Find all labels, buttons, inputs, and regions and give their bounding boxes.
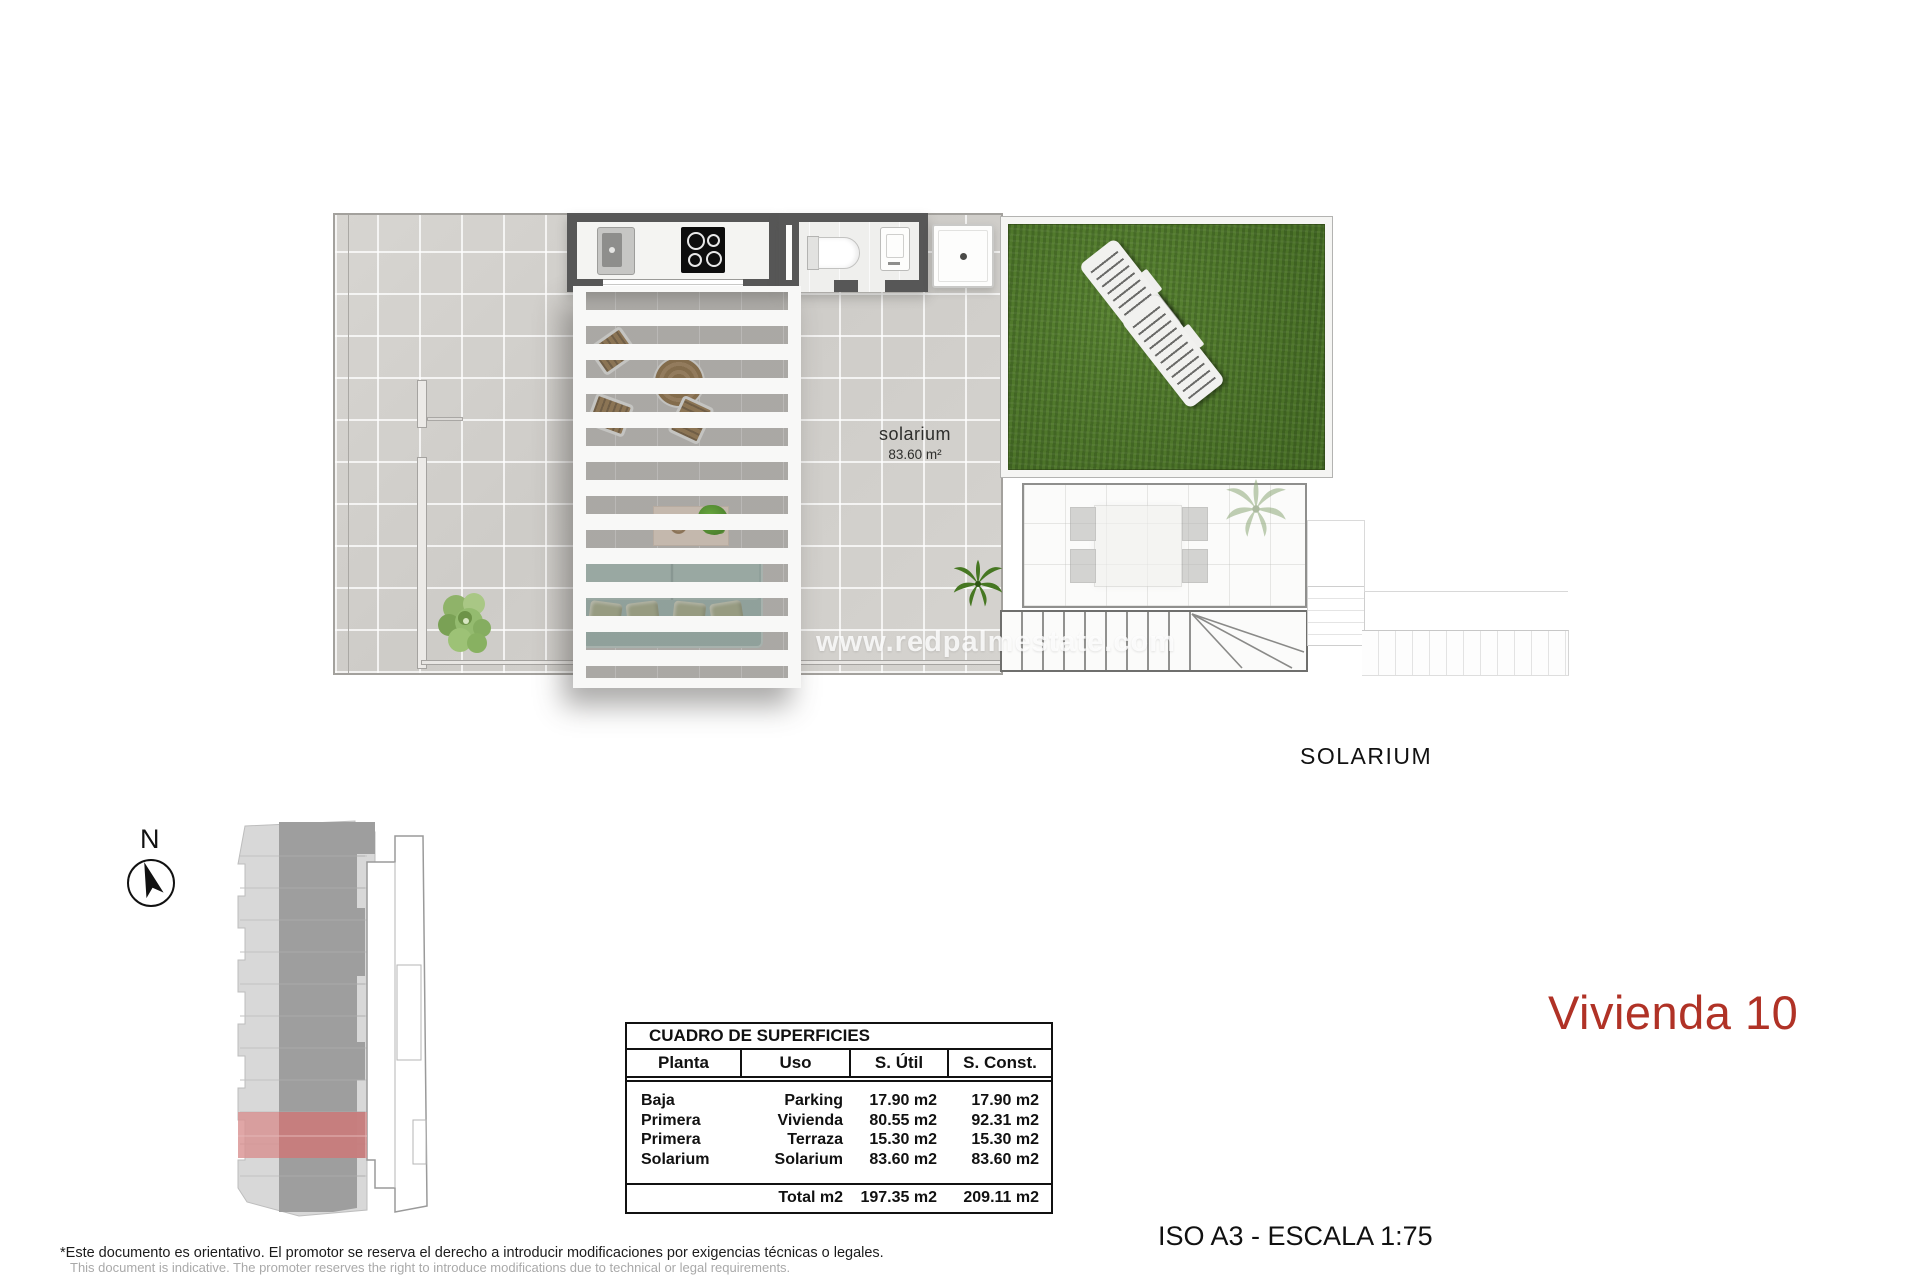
summer-kitchen bbox=[567, 213, 779, 292]
dining-chair bbox=[1182, 507, 1208, 541]
sink-icon bbox=[597, 227, 635, 275]
interior-wall bbox=[417, 457, 427, 669]
burner bbox=[706, 251, 722, 267]
interior-wall bbox=[417, 380, 427, 428]
table-body: Baja Parking 17.90 m2 17.90 m2 Primera V… bbox=[627, 1080, 1051, 1181]
wall bbox=[567, 213, 779, 222]
sun-lounger bbox=[1120, 293, 1225, 410]
burner bbox=[688, 253, 702, 267]
pergola-slats bbox=[573, 286, 801, 688]
table-cell: Baja bbox=[627, 1091, 740, 1111]
neighbor-staircase bbox=[1362, 630, 1569, 676]
table-row: Primera Vivienda 80.55 m2 92.31 m2 bbox=[627, 1111, 1051, 1131]
table-cell: Vivienda bbox=[740, 1111, 849, 1131]
bush-plant-icon bbox=[436, 588, 496, 658]
interior-wall-stub bbox=[427, 417, 463, 421]
pergola bbox=[573, 286, 801, 688]
table-cell: 15.30 m2 bbox=[849, 1130, 947, 1150]
artificial-grass bbox=[1008, 224, 1325, 470]
roof-outline bbox=[1364, 591, 1568, 592]
table-header: Planta Uso S. Útil S. Const. bbox=[627, 1050, 1051, 1078]
table-cell: Terraza bbox=[740, 1130, 849, 1150]
roof-outline bbox=[1364, 540, 1365, 592]
table-title: CUADRO DE SUPERFICIES bbox=[627, 1024, 1051, 1050]
dining-table bbox=[1094, 505, 1182, 587]
table-cell: Primera bbox=[627, 1111, 740, 1131]
washbasin-icon bbox=[880, 227, 910, 271]
floor-plan-sheet: solarium 83.60 m² bbox=[0, 0, 1920, 1280]
toilet-bowl bbox=[818, 237, 860, 269]
disclaimer: *Este documento es orientativo. El promo… bbox=[60, 1245, 884, 1276]
col-header: S. Útil bbox=[849, 1050, 947, 1076]
table-cell bbox=[627, 1188, 740, 1208]
dining-chair bbox=[1182, 549, 1208, 583]
wall bbox=[567, 213, 577, 292]
room-area: 83.60 m² bbox=[845, 447, 985, 462]
palm-tree-icon bbox=[1224, 477, 1288, 541]
burner bbox=[707, 234, 720, 247]
unit-title: Vivienda 10 bbox=[1548, 985, 1798, 1040]
table-cell: 83.60 m2 bbox=[849, 1150, 947, 1170]
col-header: S. Const. bbox=[947, 1050, 1051, 1076]
table-cell: 17.90 m2 bbox=[947, 1091, 1051, 1111]
burner bbox=[687, 232, 705, 250]
table-cell: Solarium bbox=[627, 1150, 740, 1170]
table-cell: 197.35 m2 bbox=[849, 1188, 947, 1208]
table-cell: 80.55 m2 bbox=[849, 1111, 947, 1131]
watermark: www.redpalmestate.com bbox=[816, 626, 1176, 659]
lawn-area bbox=[1000, 216, 1333, 478]
table-cell: Solarium bbox=[740, 1150, 849, 1170]
table-cell: 15.30 m2 bbox=[947, 1130, 1051, 1150]
table-cell: 83.60 m2 bbox=[947, 1150, 1051, 1170]
palm-plant-icon bbox=[952, 558, 1004, 610]
site-key-plan bbox=[237, 820, 429, 1218]
table-cell: Total m2 bbox=[740, 1188, 849, 1208]
hob-icon bbox=[681, 227, 725, 273]
dining-chair bbox=[1070, 507, 1096, 541]
bathroom bbox=[779, 213, 928, 292]
table-row: Solarium Solarium 83.60 m2 83.60 m2 bbox=[627, 1150, 1051, 1170]
table-row: Baja Parking 17.90 m2 17.90 m2 bbox=[627, 1091, 1051, 1111]
wall-opening bbox=[786, 225, 792, 280]
wall bbox=[919, 213, 928, 292]
wall bbox=[779, 213, 928, 222]
stair-landing bbox=[1307, 586, 1365, 646]
col-header: Uso bbox=[740, 1050, 849, 1076]
disclaimer-es: *Este documento es orientativo. El promo… bbox=[60, 1245, 884, 1261]
scale-note: ISO A3 - ESCALA 1:75 bbox=[1158, 1221, 1433, 1252]
north-compass: N bbox=[118, 826, 190, 914]
wall bbox=[885, 280, 919, 292]
table-cell: 209.11 m2 bbox=[947, 1188, 1051, 1208]
lower-terrace bbox=[1022, 483, 1307, 608]
dining-chair bbox=[1070, 549, 1096, 583]
table-cell: 17.90 m2 bbox=[849, 1091, 947, 1111]
table-cell: Primera bbox=[627, 1130, 740, 1150]
wall bbox=[834, 280, 858, 292]
disclaimer-en: This document is indicative. The promote… bbox=[70, 1261, 884, 1276]
deck-edge-line bbox=[348, 215, 349, 673]
toilet-icon bbox=[807, 236, 859, 268]
table-cell: Parking bbox=[740, 1091, 849, 1111]
room-label: solarium 83.60 m² bbox=[845, 424, 985, 462]
wall bbox=[769, 213, 779, 292]
room-name: solarium bbox=[845, 424, 985, 445]
shower-tray bbox=[932, 224, 994, 288]
col-header: Planta bbox=[627, 1050, 740, 1076]
adjacent-landing-outline bbox=[1307, 520, 1365, 588]
table-cell: 92.31 m2 bbox=[947, 1111, 1051, 1131]
north-label: N bbox=[140, 824, 160, 855]
table-total-row: Total m2 197.35 m2 209.11 m2 bbox=[627, 1183, 1051, 1212]
surfaces-table: CUADRO DE SUPERFICIES Planta Uso S. Útil… bbox=[625, 1022, 1053, 1214]
table-row: Primera Terraza 15.30 m2 15.30 m2 bbox=[627, 1130, 1051, 1150]
plan-caption: SOLARIUM bbox=[1300, 743, 1432, 770]
